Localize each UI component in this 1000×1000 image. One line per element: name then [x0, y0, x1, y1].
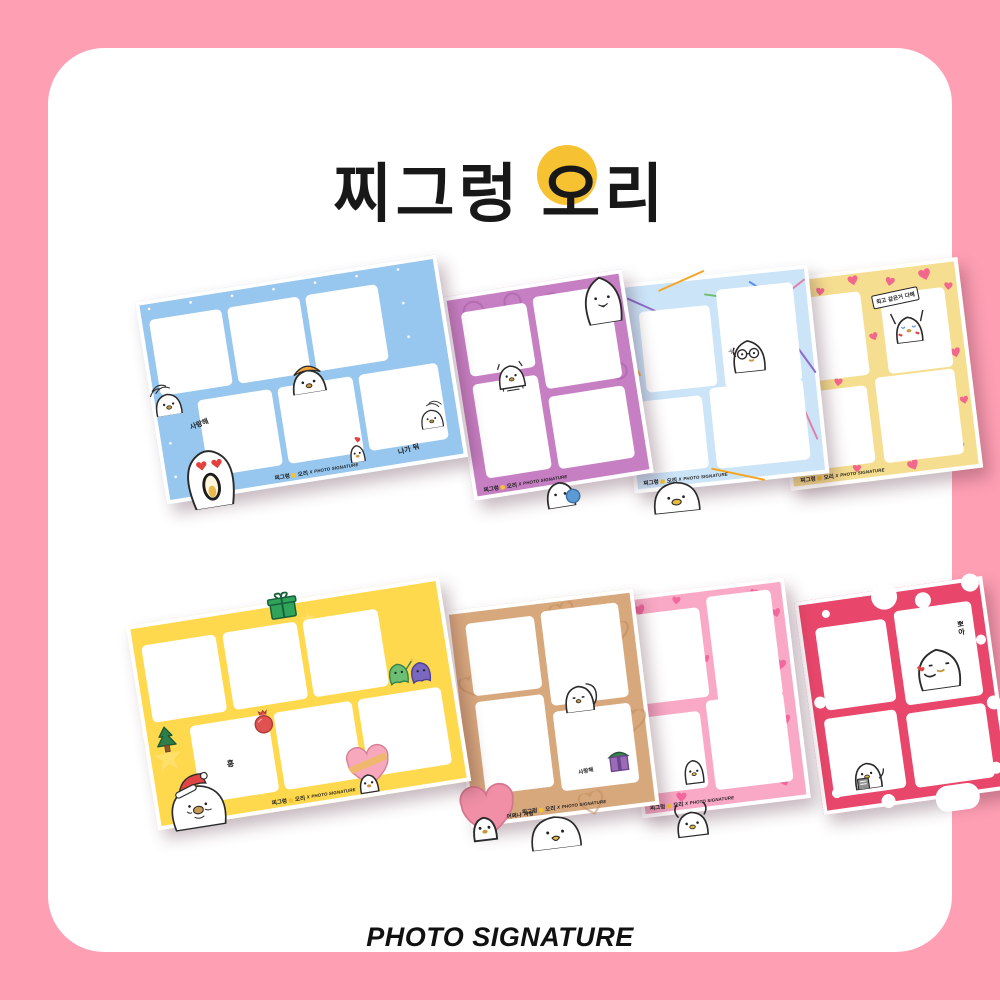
page-background: 찌그렁오리 사랑해 — [0, 0, 1000, 1000]
photo-slot — [474, 694, 554, 794]
frame-yellow-christmas: 흥 찌그렁오리XPHOTO SIGNATURE — [126, 576, 471, 830]
duck-o-dot-icon — [500, 485, 505, 490]
pine-tree-icon — [152, 723, 180, 756]
heart-icon — [833, 378, 843, 387]
product-card: 찌그렁오리 사랑해 — [48, 48, 952, 952]
white-dot-icon — [821, 610, 830, 619]
duck-small-icon — [677, 751, 709, 786]
white-dot-icon — [960, 572, 980, 592]
duck-big-icon — [575, 263, 629, 327]
octopus-friends-icon — [382, 649, 435, 689]
photo-slot — [141, 634, 228, 722]
duck-o-dot-icon — [660, 479, 665, 484]
frame-branding: 찌그렁오리XPHOTO SIGNATURE — [274, 461, 359, 482]
white-dot-icon — [880, 793, 896, 809]
photo-slot — [705, 692, 793, 791]
frame-branding: 찌그렁오리XPHOTO SIGNATURE — [271, 786, 356, 807]
duck-o-dot-icon — [539, 807, 544, 812]
duck-small-heart-icon — [344, 435, 370, 464]
duck-holding-sign-icon — [888, 304, 928, 344]
duck-leaning-icon — [557, 673, 601, 714]
duck-with-glasses-icon — [723, 325, 771, 373]
duck-blowing-kiss-icon — [906, 629, 969, 692]
photo-slot — [906, 703, 996, 788]
pomegranate-icon — [250, 707, 278, 736]
heart-icon — [884, 277, 896, 288]
frame-purple-stamps: 찌그렁오리XPHOTO SIGNATURE — [442, 269, 654, 501]
heart-icon — [672, 597, 681, 606]
photo-slot — [874, 368, 964, 463]
photo-slot — [706, 590, 783, 704]
photo-slot — [303, 608, 390, 696]
page-title: 찌그렁오리 — [48, 143, 952, 235]
heart-icon — [959, 395, 970, 405]
duck-with-book-icon — [845, 748, 890, 791]
photo-slot — [709, 379, 811, 469]
gift-purple-icon — [605, 745, 634, 776]
frame-red-dots: 뽀아 — [794, 576, 1000, 815]
bottom-tab — [934, 781, 981, 813]
title-duck-o: 오 — [541, 143, 604, 235]
photo-slot — [638, 305, 717, 393]
heart-icon — [868, 331, 879, 342]
caption-hmph: 흥 — [226, 758, 235, 770]
caption-kiss: 뽀아 — [955, 620, 967, 637]
duck-screaming-heart-eyes-icon — [176, 434, 242, 511]
white-dot-icon — [975, 634, 986, 645]
photo-slot — [465, 615, 543, 696]
duck-o-dot-icon — [288, 798, 293, 803]
duck-o-dot-icon — [667, 803, 672, 808]
duck-peeking-right-icon — [413, 397, 449, 431]
duck-with-cap-icon — [284, 358, 331, 397]
photo-slot — [548, 385, 635, 469]
duck-o-dot-icon — [818, 476, 823, 481]
title-text: 찌그렁 — [333, 158, 522, 232]
frame-tan-hearts: 사랑해 어쩌나 사랑 찌그렁오리XPHOTO SIGNATURE — [444, 588, 659, 828]
gift-box-icon — [265, 589, 299, 621]
heart-icon — [847, 275, 860, 287]
heart-icon — [944, 283, 953, 291]
frame-sky-snow-blue: 사랑해 나가 둬 찌그렁오리XPHOTO — [135, 254, 468, 504]
photo-slot — [815, 619, 897, 711]
streamer-line-icon — [658, 270, 704, 292]
duck-o-dot-icon — [291, 473, 296, 478]
heart-icon — [917, 268, 933, 283]
duck-peeking-icon — [146, 378, 189, 418]
photo-slot — [222, 621, 309, 709]
duck-santa-hat-icon — [159, 764, 233, 833]
brand-footer: PHOTO SIGNATURE — [48, 922, 952, 953]
duck-small-wing-icon — [492, 359, 530, 394]
title-text-2: 리 — [604, 158, 667, 232]
white-dot-icon — [986, 694, 1000, 710]
white-dot-icon — [869, 582, 898, 611]
